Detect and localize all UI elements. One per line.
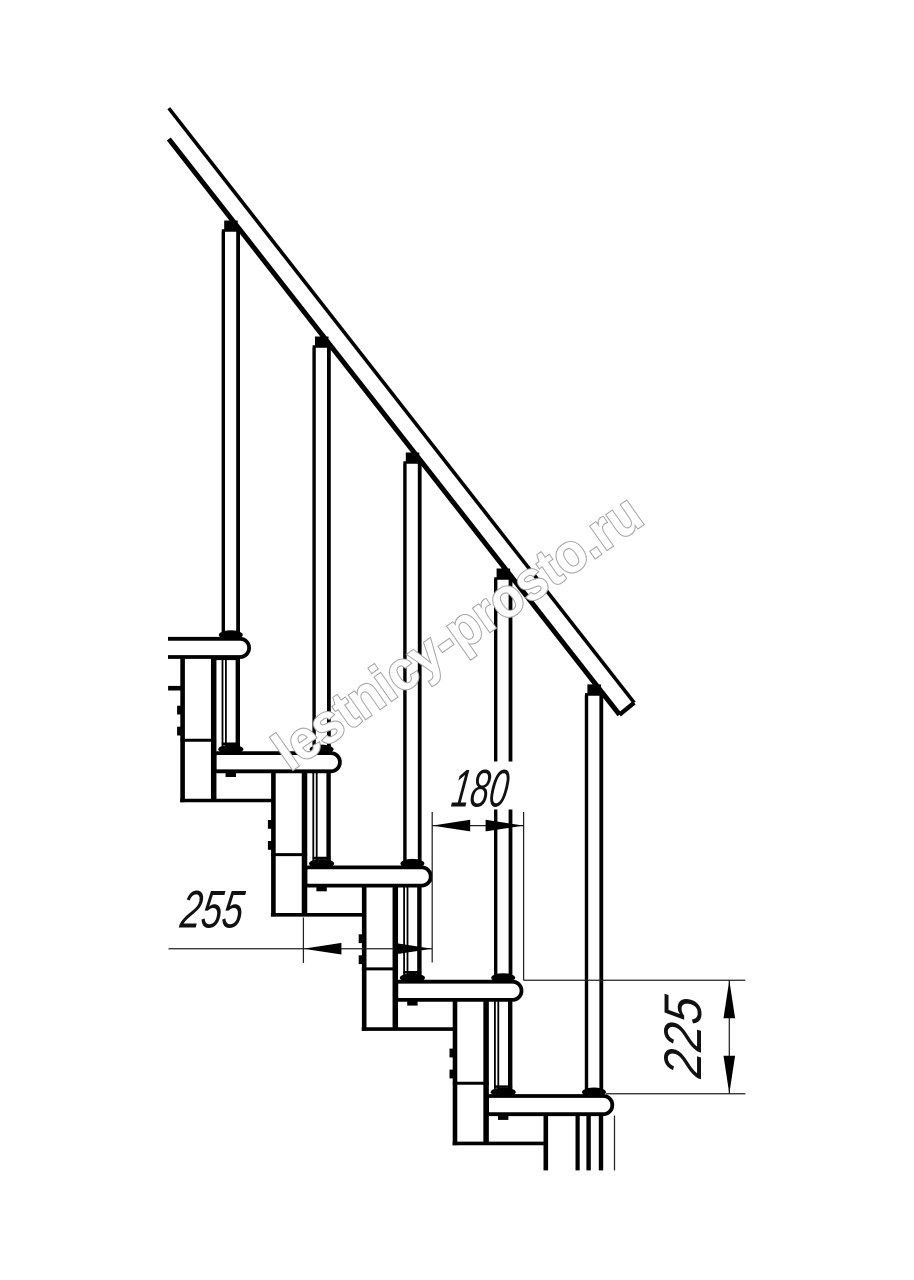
svg-text:225: 225 (654, 992, 713, 1081)
svg-text:180: 180 (448, 760, 512, 819)
svg-text:255: 255 (177, 881, 248, 940)
